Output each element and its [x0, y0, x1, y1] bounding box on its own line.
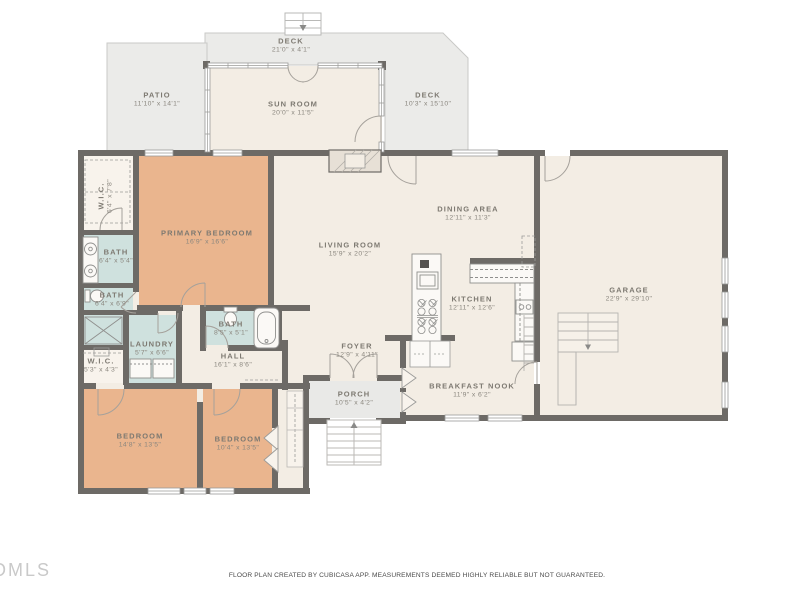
room-name: HALL [214, 353, 252, 361]
deck-steps [285, 13, 321, 35]
hall-closet-strip [287, 391, 303, 467]
room-label-bath-1: BATH 6'4" x 5'4" [99, 249, 133, 266]
room-label-laundry: LAUNDRY 5'7" x 6'6" [130, 341, 174, 358]
room-label-foyer: FOYER 12'9" x 4'11" [336, 343, 378, 360]
room-name: PORCH [335, 391, 373, 399]
room-label-sun-room: SUN ROOM 20'0" x 11'5" [268, 101, 318, 118]
room-label-garage: GARAGE 22'9" x 29'10" [606, 287, 653, 304]
room-dims: 22'9" x 29'10" [606, 297, 653, 304]
room-name: PRIMARY BEDROOM [161, 230, 253, 238]
room-label-primary-bedroom: PRIMARY BEDROOM 16'9" x 16'6" [161, 230, 253, 247]
room-name: LAUNDRY [130, 341, 174, 349]
room-dims: 5'3" x 4'3" [84, 368, 118, 375]
room-dims: 14'8" x 13'5" [117, 443, 164, 450]
room-label-bath-3: BATH 8'5" x 5'1" [214, 321, 248, 338]
porch-stairs [327, 420, 381, 465]
room-dims: 12'11" x 12'6" [449, 306, 495, 313]
kitchen-island [412, 254, 441, 342]
room-label-hall: HALL 16'1" x 8'6" [214, 353, 252, 370]
room-name: BREAKFAST NOOK [429, 383, 515, 391]
double-sink-icon [83, 237, 98, 283]
room-label-breakfast-nook: BREAKFAST NOOK 11'9" x 6'2" [429, 383, 515, 400]
room-label-dining-area: DINING AREA 12'11" x 11'3" [437, 206, 498, 223]
room-name: LIVING ROOM [319, 242, 382, 250]
room-name: FOYER [336, 343, 378, 351]
room-dims: 6'4" x 6'9" [95, 302, 129, 309]
room-name: BEDROOM [215, 436, 262, 444]
fireplace-icon [329, 150, 381, 172]
room-label-bath-2: BATH 6'4" x 6'9" [95, 292, 129, 309]
room-name: KITCHEN [449, 296, 495, 304]
floor-plan-page: DECK 21'0" x 4'1" PATIO 11'10" x 14'1" S… [0, 0, 800, 600]
room-dims: 11'9" x 6'2" [429, 393, 515, 400]
bathtub-icon [254, 308, 279, 348]
room-dims: 21'0" x 4'1" [272, 48, 310, 55]
room-dims: 16'1" x 8'6" [214, 363, 252, 370]
room-dims: 6'4" x 7'8" [108, 179, 115, 213]
room-dims: 11'10" x 14'1" [134, 102, 180, 109]
room-dims: 15'9" x 20'2" [319, 252, 382, 259]
room-dims: 5'7" x 6'6" [130, 351, 174, 358]
room-dims: 12'9" x 4'11" [336, 353, 378, 360]
room-label-patio: PATIO 11'10" x 14'1" [134, 92, 180, 109]
room-name: PATIO [134, 92, 180, 100]
room-name: GARAGE [606, 287, 653, 295]
room-label-deck-top: DECK 21'0" x 4'1" [272, 38, 310, 55]
room-name: W.I.C. [84, 358, 118, 366]
room-dims: 8'5" x 5'1" [214, 331, 248, 338]
room-dims: 10'4" x 13'5" [215, 446, 262, 453]
room-name: BATH [95, 292, 129, 300]
room-label-living-room: LIVING ROOM 15'9" x 20'2" [319, 242, 382, 259]
room-label-deck-right: DECK 10'3" x 15'10" [405, 92, 452, 109]
room-dims: 20'0" x 11'5" [268, 111, 318, 118]
room-name: SUN ROOM [268, 101, 318, 109]
room-label-porch: PORCH 10'5" x 4'2" [335, 391, 373, 408]
room-name: DINING AREA [437, 206, 498, 214]
room-name: DECK [272, 38, 310, 46]
room-label-wic-bottom: W.I.C. 5'3" x 4'3" [84, 358, 118, 375]
room-dims: 16'9" x 16'6" [161, 240, 253, 247]
room-dims: 10'5" x 4'2" [335, 401, 373, 408]
room-name: DECK [405, 92, 452, 100]
room-name: BATH [99, 249, 133, 257]
room-label-bedroom-2: BEDROOM 10'4" x 13'5" [215, 436, 262, 453]
disclaimer-text: FLOOR PLAN CREATED BY CUBICASA APP. MEAS… [0, 572, 800, 579]
room-label-bedroom-1: BEDROOM 14'8" x 13'5" [117, 433, 164, 450]
room-name: BATH [214, 321, 248, 329]
room-dims: 6'4" x 5'4" [99, 259, 133, 266]
foyer-closet [410, 341, 450, 367]
room-dims: 10'3" x 15'10" [405, 102, 452, 109]
room-dims: 12'11" x 11'3" [437, 216, 498, 223]
room-label-wic-top: W.I.C. 6'4" x 7'8" [98, 179, 115, 213]
room-name: BEDROOM [117, 433, 164, 441]
room-label-kitchen: KITCHEN 12'11" x 12'6" [449, 296, 495, 313]
room-name: W.I.C. [98, 179, 106, 213]
